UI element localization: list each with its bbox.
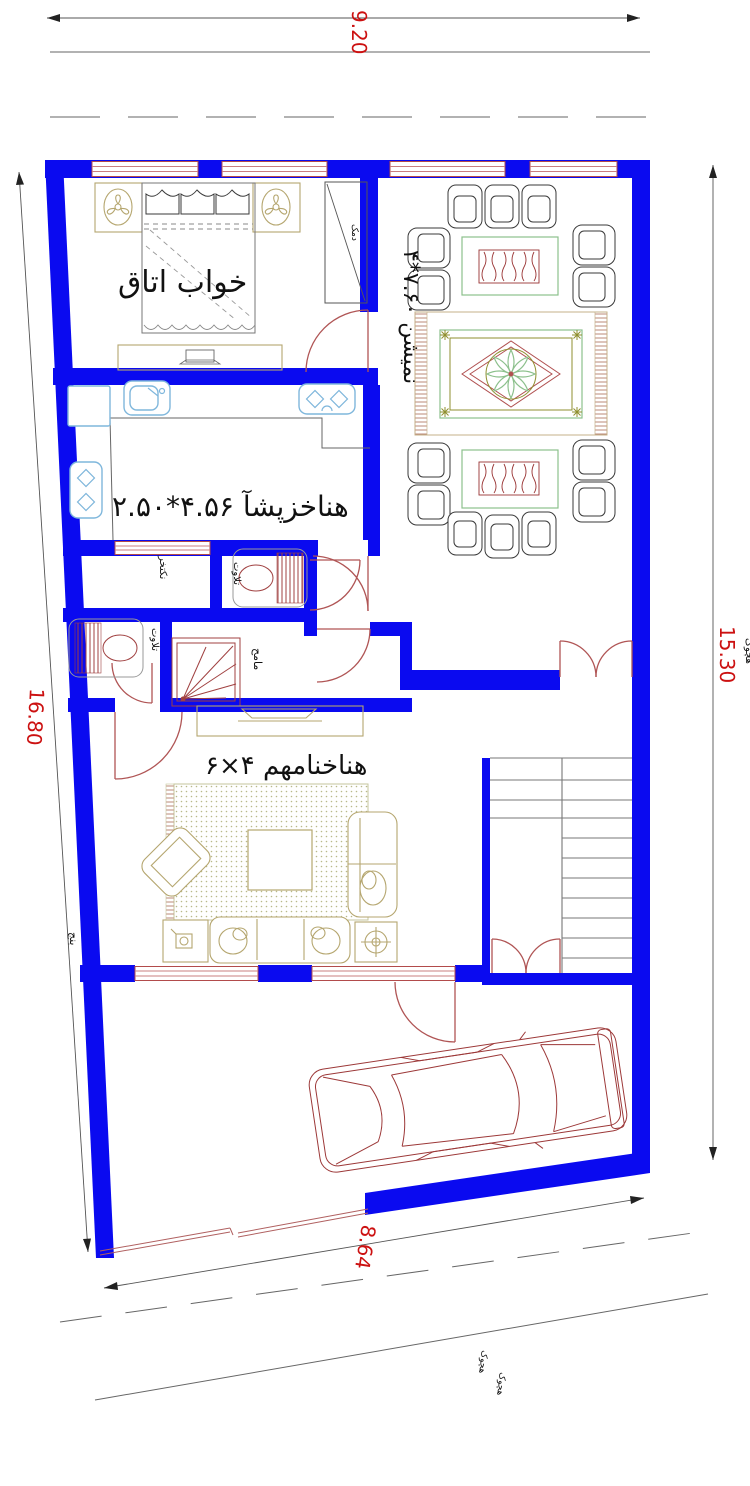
garage-south-wall — [365, 1151, 650, 1215]
shower-tray — [172, 638, 240, 706]
side-table-teapot — [163, 920, 208, 962]
window — [312, 967, 455, 981]
kitchen-label: ۲.۵۰*۴.۵۶ آشپزخانه — [112, 490, 349, 523]
double-bed — [142, 183, 255, 333]
dim-right-text: 15.30 — [715, 626, 739, 683]
right-sofa — [348, 812, 397, 917]
yard-door — [395, 982, 455, 1042]
floor-plan-drawing: 9.20 15.30 16.80 8.64 قاتا باوخ ۲.۵۰*۴.۵… — [0, 0, 750, 1486]
stair-yard-double-door — [492, 939, 560, 973]
living-label: ۴*۷.۶۰ نشیمن — [398, 250, 423, 384]
bottom-sofa — [210, 917, 350, 963]
bedroom-door — [306, 310, 368, 372]
counter-edge — [107, 418, 370, 448]
yard — [100, 1019, 630, 1255]
coffee-table — [462, 450, 558, 508]
stove-cooktop — [299, 384, 355, 414]
window — [390, 162, 505, 177]
dim-top-text: 9.20 — [347, 10, 371, 55]
fence-gate-line — [100, 1209, 368, 1255]
bathrooms — [69, 549, 307, 706]
hall-label: ۶×۴ مهمانخانه — [205, 751, 368, 781]
hall-door — [115, 712, 182, 779]
alley-bottom-label-2: کوچه — [494, 1372, 508, 1397]
toilet-top-door — [310, 560, 360, 610]
window — [530, 162, 617, 177]
side-hob — [70, 462, 102, 518]
street-bottom — [60, 1232, 708, 1400]
floor-plan-canvas: 9.20 15.30 16.80 8.64 قاتا باوخ ۲.۵۰*۴.۵… — [0, 0, 750, 1486]
side-table-fan — [355, 922, 397, 962]
squat-toilet-top — [233, 549, 307, 607]
window — [92, 162, 198, 177]
dressing-label: رختکن — [157, 555, 168, 579]
car — [306, 1019, 630, 1182]
dresser-tv-table — [118, 345, 282, 370]
sofa-set-bottom — [408, 440, 615, 558]
entry-double-door — [560, 641, 632, 677]
squat-toilet-bottom — [69, 619, 143, 677]
neighbor-left-label: جنب — [67, 932, 80, 945]
dimension-lines — [16, 165, 717, 1290]
toilet-bottom-label: توالت — [149, 628, 160, 651]
hall — [138, 706, 397, 963]
alley-right-label: کوچه — [743, 638, 750, 664]
window — [222, 162, 327, 177]
living-room — [408, 185, 615, 558]
east-wall — [632, 160, 650, 1164]
sofa-set-top — [408, 185, 615, 310]
staircase — [490, 758, 632, 973]
kitchen-sink — [124, 381, 170, 415]
shower-door — [317, 629, 370, 682]
bedroom-label: قاتا باوخ — [118, 265, 247, 300]
living-rug — [415, 312, 607, 435]
shower-label: حمام — [251, 648, 264, 670]
alley-bottom-label-1: کوچه — [476, 1350, 490, 1375]
window — [135, 967, 258, 981]
coffee-table — [462, 237, 558, 295]
fridge — [68, 386, 110, 426]
rug-medallion — [486, 349, 536, 399]
toilet-top-label: توالت — [231, 562, 242, 585]
dim-bottom-text: 8.64 — [350, 1223, 381, 1271]
center-table — [248, 830, 312, 890]
toilet-bottom-door — [112, 663, 152, 703]
closet-label: کمد — [349, 224, 359, 241]
dim-left-text: 16.80 — [22, 688, 49, 746]
window — [115, 542, 210, 555]
